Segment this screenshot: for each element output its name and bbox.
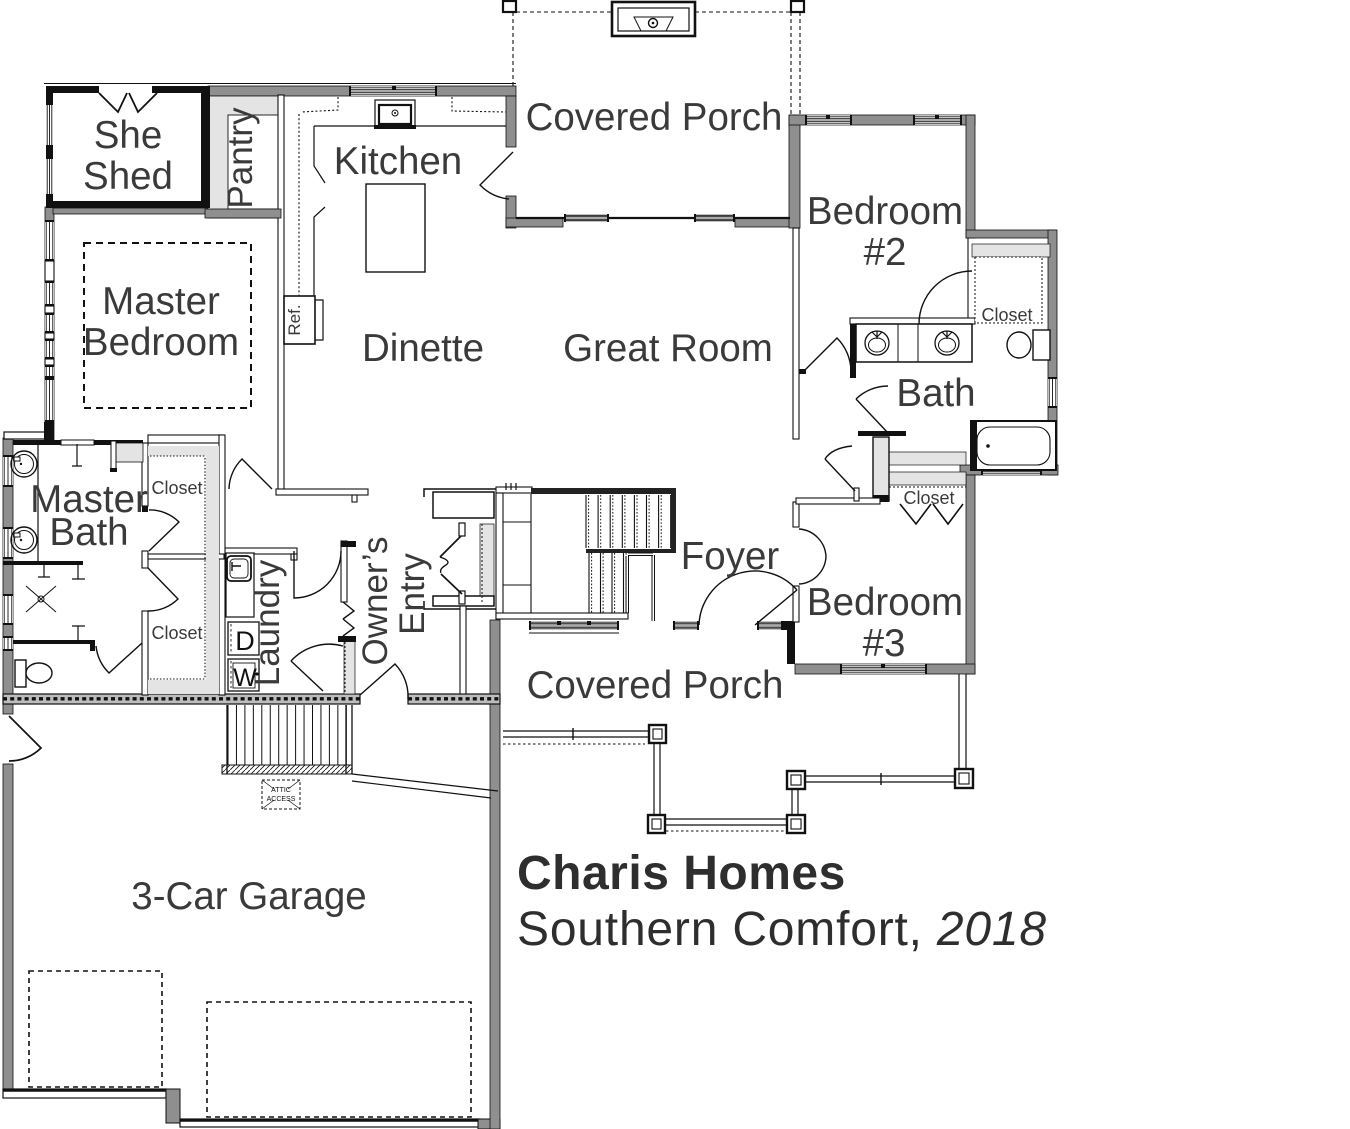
svg-text:Pantry: Pantry xyxy=(221,107,260,209)
svg-text:#2: #2 xyxy=(864,231,907,274)
svg-text:Ref.: Ref. xyxy=(285,304,304,335)
svg-text:She: She xyxy=(94,114,163,157)
svg-text:Closet: Closet xyxy=(981,305,1032,325)
svg-text:Master: Master xyxy=(102,280,220,323)
svg-text:Bedroom: Bedroom xyxy=(807,190,963,233)
svg-text:Closet: Closet xyxy=(151,623,202,643)
svg-text:Closet: Closet xyxy=(903,488,954,508)
svg-text:Laundry: Laundry xyxy=(248,559,287,686)
svg-text:Great Room: Great Room xyxy=(563,327,773,370)
svg-text:Bath: Bath xyxy=(896,372,975,415)
svg-text:Foyer: Foyer xyxy=(681,535,780,578)
svg-text:Shed: Shed xyxy=(83,155,173,198)
svg-text:Dinette: Dinette xyxy=(362,327,484,370)
svg-text:Bath: Bath xyxy=(49,511,128,554)
svg-text:#3: #3 xyxy=(863,622,906,665)
svg-text:Closet: Closet xyxy=(151,478,202,498)
svg-text:Entry: Entry xyxy=(393,553,432,635)
svg-text:Bedroom: Bedroom xyxy=(807,581,963,624)
svg-text:ACCESS: ACCESS xyxy=(267,796,296,803)
svg-text:Charis Homes: Charis Homes xyxy=(517,847,846,900)
svg-text:Southern Comfort, 2018: Southern Comfort, 2018 xyxy=(517,903,1047,956)
svg-text:Covered Porch: Covered Porch xyxy=(527,664,784,707)
svg-text:Kitchen: Kitchen xyxy=(334,140,462,183)
svg-text:Bedroom: Bedroom xyxy=(83,321,239,364)
svg-text:3-Car Garage: 3-Car Garage xyxy=(131,875,366,918)
svg-text:Covered Porch: Covered Porch xyxy=(526,96,783,139)
svg-text:Owner’s: Owner’s xyxy=(356,536,395,665)
svg-text:ATTIC: ATTIC xyxy=(271,787,291,794)
